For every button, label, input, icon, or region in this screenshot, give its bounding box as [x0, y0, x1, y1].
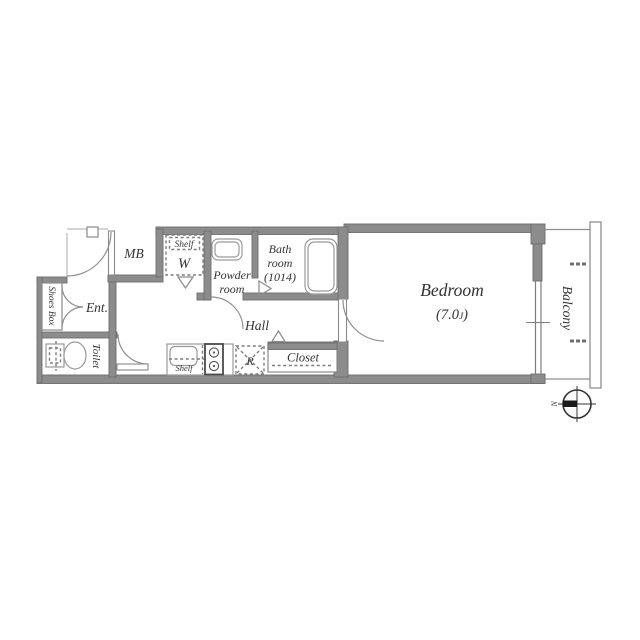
wall-powder-bath — [252, 231, 258, 278]
label-hall: Hall — [244, 318, 269, 333]
label-closet: Closet — [287, 351, 319, 365]
closet-door-mark — [272, 331, 285, 342]
entrance-door-arc — [67, 232, 111, 276]
bedroom-door-arc — [343, 300, 384, 341]
label-bedroom: Bedroom — [420, 280, 484, 300]
stove-burner-2-dot — [213, 365, 215, 367]
powder-door-arc — [211, 297, 243, 329]
wall-mb-bottom — [108, 275, 163, 282]
washer-notch-triangle — [178, 277, 193, 288]
label-bath-3: (1014) — [264, 270, 296, 284]
floor-plan-page: N MB Shelf W Powder room Bath room (1014… — [0, 0, 640, 640]
label-toilet: Toilet — [90, 344, 102, 370]
bedroom-size-prefix: (7.0 — [436, 307, 460, 323]
toilet-tank — [46, 344, 64, 367]
bathtub-inner — [308, 242, 334, 291]
bedroom-size-suffix: ) — [462, 307, 468, 323]
wall-powder-left — [204, 231, 211, 300]
label-shoes-box: Shoes Box — [46, 286, 56, 326]
stove-burner-1-dot — [213, 351, 215, 353]
bedroom-door-leaf — [339, 299, 347, 342]
stove — [205, 344, 223, 375]
label-bedroom-size: (7.0J) — [436, 307, 468, 323]
wall-top-mid — [156, 227, 346, 235]
entrance-door-stop — [87, 227, 98, 237]
shoes-box-door-arc-lower — [62, 307, 83, 328]
wall-bedroom-left-upper — [338, 227, 348, 299]
shoes-box-door-arc-upper — [62, 286, 83, 307]
label-kitchen-shelf: Shelf — [176, 363, 195, 373]
wall-ent-hall — [109, 282, 116, 377]
balcony-rail — [590, 222, 601, 388]
label-bath-1: Bath — [269, 242, 292, 256]
label-bath-2: room — [268, 256, 293, 270]
label-washer-shelf: Shelf — [175, 239, 195, 250]
wall-bedroom-right-upper — [533, 244, 542, 281]
toilet-door-arc — [118, 334, 148, 364]
entrance-door-leaf — [109, 231, 115, 275]
floor-plan-drawing: N MB Shelf W Powder room Bath room (1014… — [0, 0, 640, 640]
compass: N — [550, 386, 596, 422]
toilet-bowl — [64, 342, 86, 369]
powder-sink-inner — [215, 242, 239, 257]
label-powder-2: room — [220, 282, 245, 296]
wall-left — [37, 277, 42, 383]
closet-top-band — [268, 343, 337, 350]
label-balcony: Balcony — [560, 286, 575, 330]
compass-north-label: N — [550, 401, 559, 408]
label-entrance: Ent. — [85, 300, 108, 315]
label-washer-w: W — [178, 256, 192, 272]
label-mb: MB — [123, 246, 144, 261]
compass-north-bar — [563, 401, 577, 408]
wall-bedroom-right-lower — [531, 374, 545, 384]
label-powder-1: Powder — [212, 268, 251, 282]
wall-top-bedroom — [344, 224, 533, 233]
label-refrigerator: R — [245, 354, 254, 368]
wall-ent-toilet — [37, 332, 117, 338]
toilet-door-leaf — [117, 364, 148, 370]
wall-bedroom-right-corner — [531, 224, 545, 244]
wall-mb-washer — [156, 229, 163, 277]
